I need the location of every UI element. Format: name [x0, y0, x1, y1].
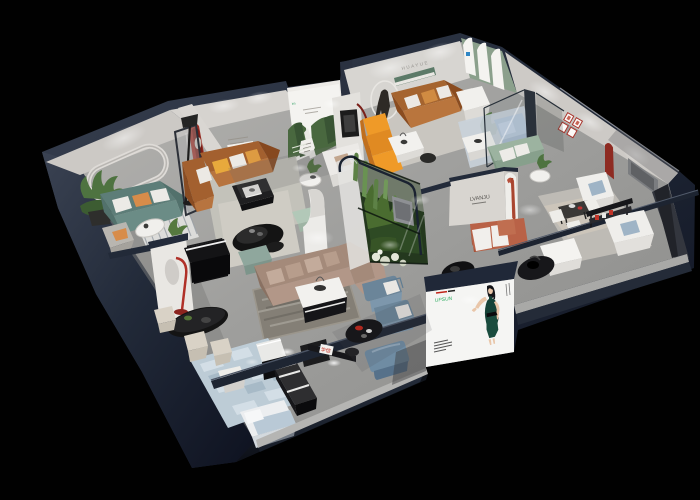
svg-text:im: im: [292, 101, 296, 106]
